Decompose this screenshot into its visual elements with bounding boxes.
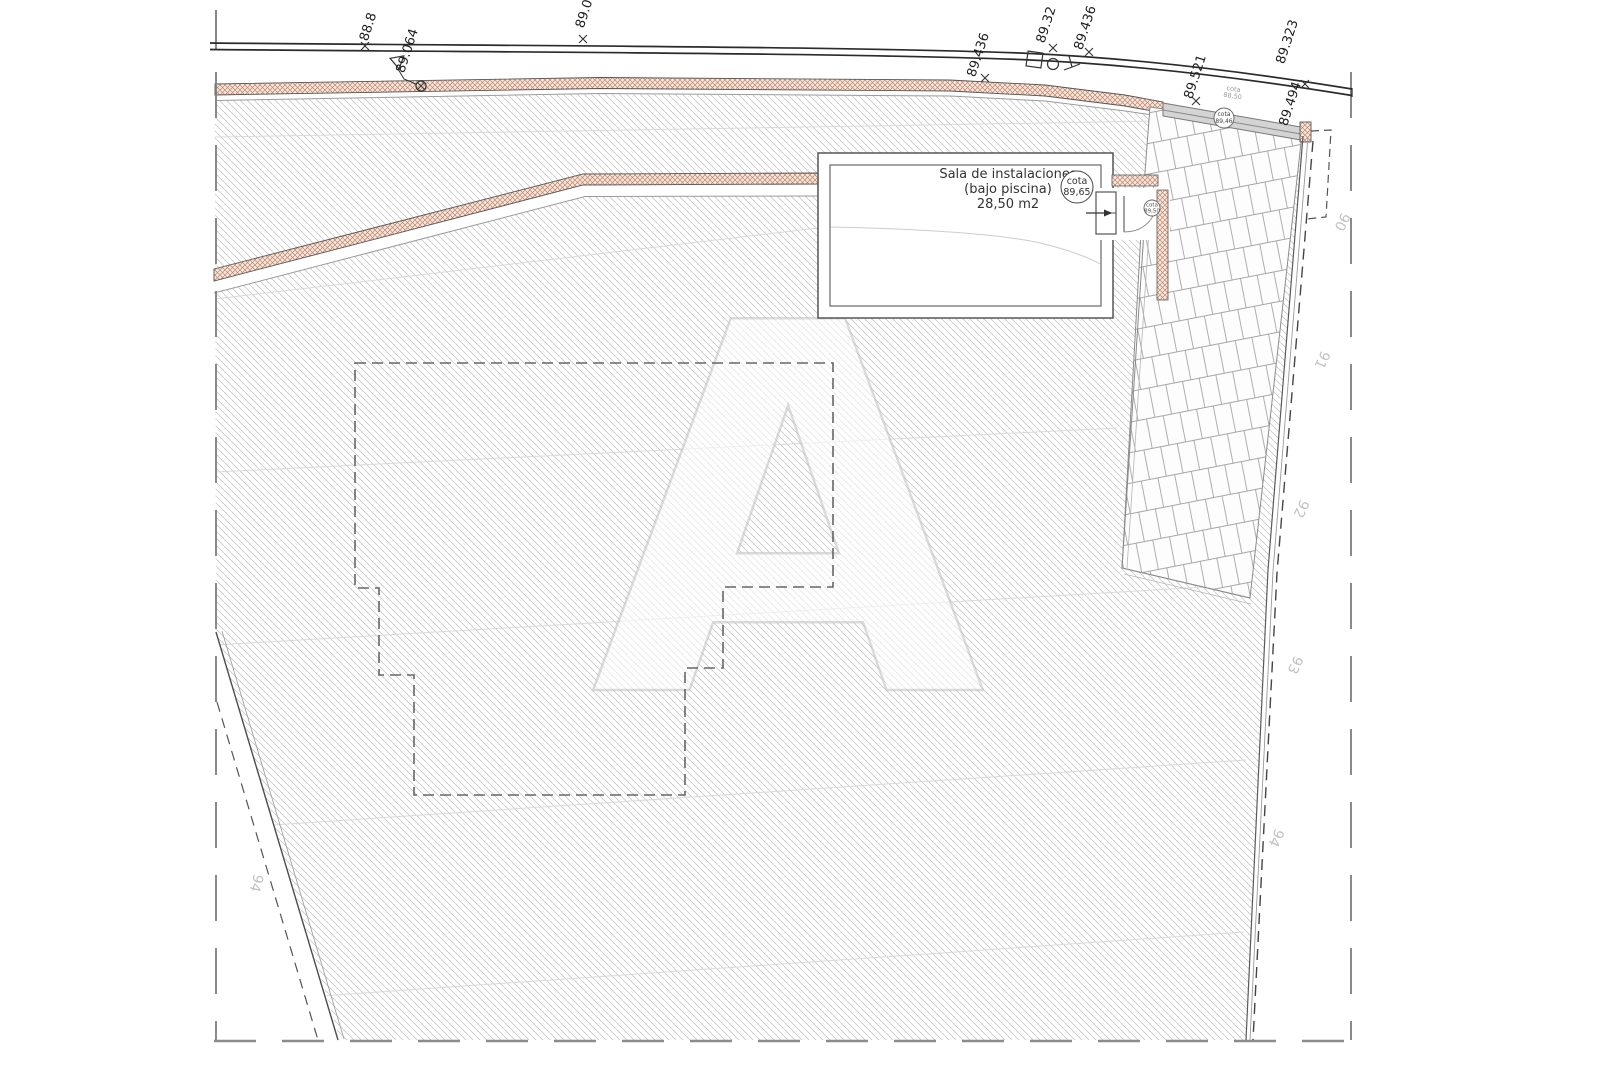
contour-label-92: 92 [1290, 497, 1312, 520]
contour-label-90: 90 [1331, 210, 1353, 233]
site-plan-canvas: A cota 89,46 [0, 0, 1600, 1066]
tick-89-436a [981, 74, 989, 82]
tick-89-0 [579, 35, 587, 43]
room-cota-value: 89,65 [1063, 187, 1090, 198]
contour-label-93: 93 [1284, 653, 1306, 676]
elevation-label: 89.32 [1034, 5, 1060, 45]
wall-corner-block [1300, 122, 1311, 142]
room-cota-label: cota [1067, 176, 1088, 187]
site-plan-drawing: A cota 89,46 [0, 0, 1600, 1066]
elevation-label: 89.0 [573, 0, 596, 30]
driveway-cota-label: cota [1218, 111, 1231, 118]
tick-88-8 [361, 42, 369, 50]
driveway-cota-circle: cota 89,46 [1214, 108, 1234, 128]
room-area-label: 28,50 m2 [977, 197, 1039, 212]
room-cota-circle: cota 89,65 [1061, 171, 1093, 203]
wall-strip-above-door [1112, 175, 1158, 186]
elevation-label: 89.436 [965, 31, 993, 79]
elevation-label: 89.521 [1182, 53, 1210, 101]
room-name-line1: Sala de instalaciones [939, 167, 1077, 182]
driveway-note-value: 88,50 [1223, 91, 1243, 102]
room-name-line2: (bajo piscina) [964, 182, 1052, 197]
driveway-cota-note: cota 88,50 [1223, 84, 1244, 101]
elevation-label: 89.436 [1072, 4, 1100, 52]
elevation-label: 88.8 [357, 11, 380, 43]
tick-89-32 [1049, 44, 1057, 52]
elevation-label: 89.494 [1277, 80, 1305, 128]
utility-circle-symbol [1048, 59, 1059, 70]
plant-room: Sala de instalaciones (bajo piscina) 28,… [818, 153, 1113, 318]
contour-label-91: 91 [1311, 348, 1333, 371]
door-cota-value: 89,50 [1144, 209, 1160, 215]
driveway-cota-value: 89,46 [1215, 118, 1232, 125]
door-cota-circle: cota 89,50 [1144, 200, 1160, 216]
contour-label-94-right: 94 [1265, 826, 1287, 849]
elevation-label: 89.323 [1274, 18, 1302, 66]
corner-offset-bracket [1307, 130, 1331, 219]
